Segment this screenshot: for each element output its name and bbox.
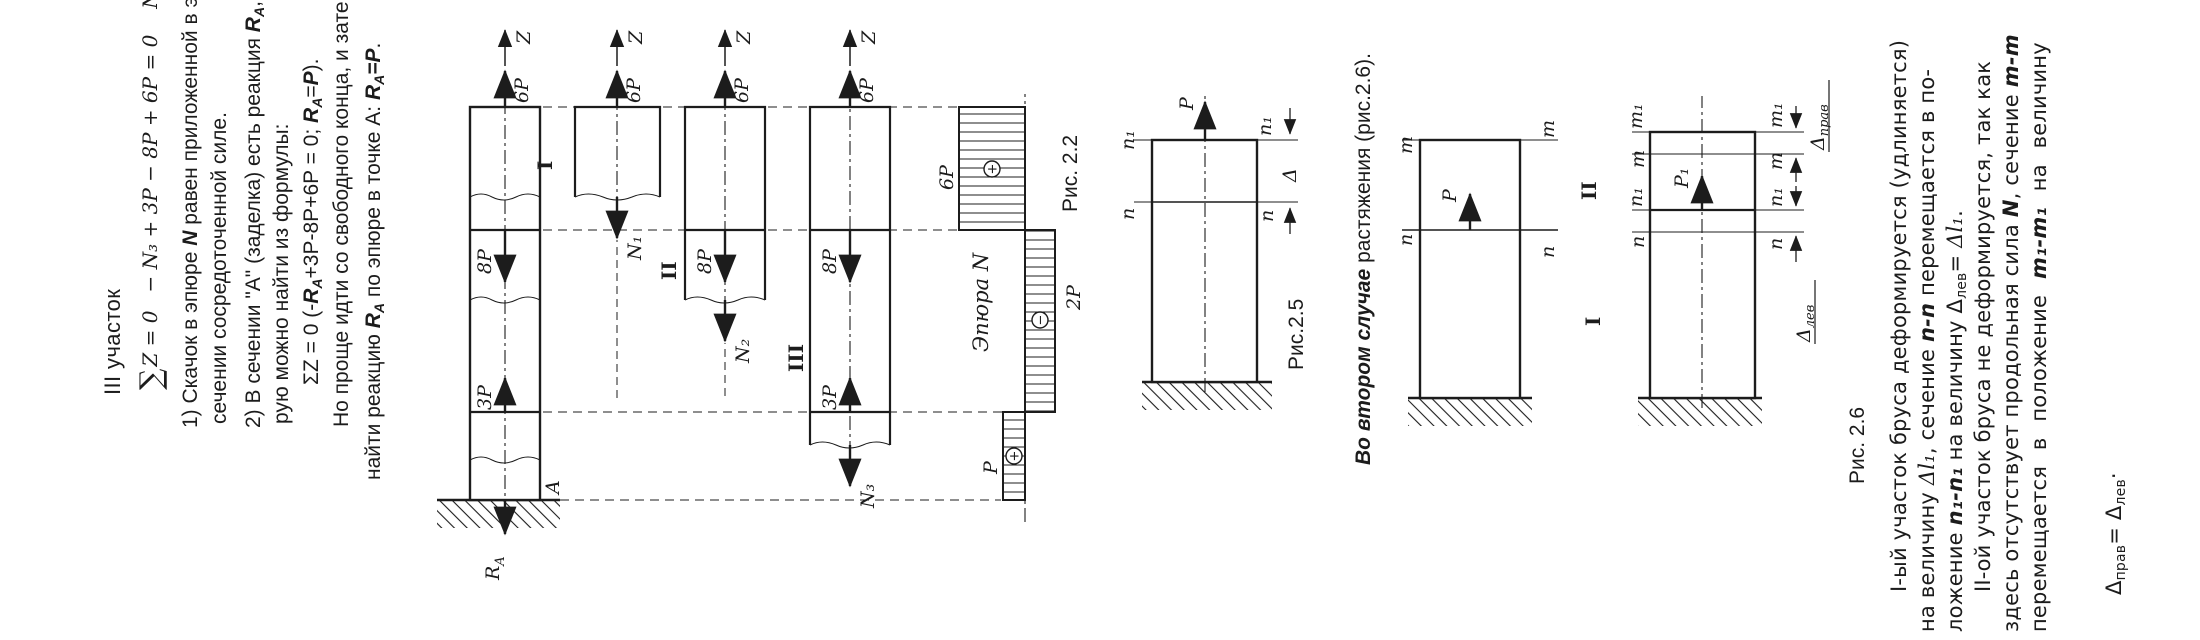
formula2-a: ΣZ = 0 (- [300,304,323,385]
expl-l3-dot: . [1943,210,1967,217]
wall-hatching [437,500,560,528]
expl-line1: I-ый участок бруса деформируется (удлиня… [1888,40,1910,592]
formula-reaction: ΣZ = 0 (-RA+3P-8P+6P = 0; RA=P). [301,59,325,385]
m-label-bottom: m [1537,120,1559,138]
expl-l3-text: ложение [1943,525,1967,632]
epure-6p-label: 6P [936,164,958,190]
expl-eq: = [2102,520,2126,545]
expl-l6-text2: на величину [2027,42,2051,207]
wall-hatching [1408,398,1532,426]
item2-R: R [242,17,265,32]
figure-2-5-caption: Рис.2.5 [1285,299,1308,370]
m1-label-top: m₁ [1625,103,1647,129]
figure-2-6: P m n m n I II P₁ n n₁ m m₁ n [1392,0,1882,640]
expl-delta: Δ [1943,299,1967,314]
expl-line5: здесь отсутствует продольная сила N, сеч… [2000,34,2022,632]
para3-R2: R [362,85,385,100]
expl-nn: n-n [1915,303,1939,342]
normal-force-diagram: + − + P 2P 6P Эпюра N Рис. 2.2 [936,94,1085,522]
para3-dot: . [362,43,385,49]
z-axis-label: Z [858,30,880,45]
main-bar-diagram: RA A 3P 8P 6P Z I [437,30,564,581]
force-3p-label: 3P [474,384,496,410]
expl-dl1: Δl₁ [1915,454,1939,485]
m-label-bottom: m [1765,152,1787,170]
expl-line4: II-ой участок бруса не деформируется, та… [1972,61,1994,592]
epure-title: Эпюра N [969,252,993,352]
second-case-rest: растяжения (рис.2.6). [1352,53,1375,269]
n1-label: N₁ [624,236,646,261]
second-case-lead: Во втором случае [1352,269,1375,465]
n3-label: N₃ [857,484,879,509]
formula2-R: R [300,289,323,304]
ra-label: RA [482,556,508,581]
expl-delta-sub: лев [1954,272,1970,298]
para3-line1: Но проще идти со свободного конца, и зат… [331,0,353,427]
m-label-top: m [1627,150,1649,168]
item1-N: N [179,231,202,246]
point-a-label: A [542,480,564,496]
expl-line7: Δправ= Δлев· [2103,472,2129,595]
figure-2-5: P n n₁ n n₁ Δ Рис.2.5 [1120,0,1320,640]
expl-line2: на величину Δl₁, сечение n-n перемещаетс… [1916,69,1938,632]
expl-dprav: Δ [2102,580,2126,595]
item2-R-sub: A [251,7,267,17]
para3-R: R [362,313,385,328]
plus-sign: + [986,164,1001,175]
item1-line2: сечении сосредоточенной силе. [209,112,231,424]
item1-line1: 1) Скачок в эпюре N равен приложенной в … [180,0,202,428]
para3-R-sub: A [371,303,387,313]
force-8p-label: 8P [474,248,496,274]
para3-R2-sub: A [371,75,387,85]
figure-2-2: RA A 3P 8P 6P Z I N₁ 6P Z II [425,0,1095,640]
force-3p-label: 3P [819,384,841,410]
expl-l2-text2: , сечение [1915,342,1939,454]
expl-l3-eq: = [1943,248,1967,273]
tension-bar-diagram: P n n₁ n n₁ Δ Рис.2.5 [1120,96,1308,410]
bar-outline [1420,140,1520,398]
expl-l5-text: здесь отсутствует продольная сила [1999,217,2023,632]
expl-l2-text3: перемещается в по- [1915,69,1939,303]
expl-dl1: Δl₁ [1943,217,1967,248]
para3-line2: найти реакцию RA по эпюре в точке А: RA=… [363,43,387,480]
force-p1-label: P₁ [1671,168,1693,189]
n-label-top: n [1120,208,1139,220]
expl-m1m1: m₁-m₁ [2027,207,2051,279]
formula2-c: +3P-8P+6P = 0; [300,123,323,278]
minus-sign: − [1034,315,1049,326]
n1-label-bottom: n₁ [1254,116,1276,136]
expl-l6-text: перемещается в положение [2027,279,2051,632]
para3-l2-text: найти реакцию [362,328,385,480]
section-1-numeral: I [1581,317,1605,326]
formula2-R-sub: A [309,278,325,288]
n-label-bottom: n [1765,238,1787,250]
item2-line1-text2: , кото- [242,0,265,7]
formula2-eq: = [300,85,323,97]
para3-eq: = [362,62,385,74]
force-p-label: P [1176,96,1198,111]
expl-mm: m-m [1999,34,2023,87]
expl-line6: перемещается в положение m₁-m₁ на величи… [2028,42,2050,632]
m-label-top: m [1395,136,1417,154]
n1-label-bottom: n₁ [1765,187,1787,207]
formula2-RA: RA [300,278,323,303]
expl-line3: ложение n₁-n₁ на величину Δлев= Δl₁. [1944,210,1970,632]
expl-N: N [1999,199,2023,217]
formula2-close: ). [300,59,323,72]
delta-label: Δ [1279,168,1301,183]
n1-label-top: n₁ [1625,187,1647,207]
plus-sign: + [1008,451,1023,462]
section-heading: III участок [101,289,124,395]
scanned-textbook-page: III участок ∑Z = 0− N₃ + 3P − 8P + 6P = … [0,0,2200,640]
expl-dlev-sub: лев [2113,479,2129,505]
para3-l2-text2: по эпюре в точке А: [362,100,385,303]
delta-lev-label: Δлев [1793,305,1818,343]
n1-label-top: n₁ [1120,130,1139,150]
n-label-bottom: n [1537,246,1559,258]
bar-deformed: P₁ n n₁ m m₁ n n₁ m m₁ Δлев Δправ Рис. 2… [1625,80,1869,484]
expl-l5-text2: , сечение [1999,87,2023,199]
section-2-numeral: II [1577,181,1601,200]
section-1-numeral: I [533,161,557,170]
z-axis-label: Z [733,30,755,45]
delta-prav-label: Δправ [1807,104,1832,151]
formula-equilibrium: ∑Z = 0− N₃ + 3P − 8P + 6P = 0N₃ = P [136,0,168,390]
force-8p-label: 8P [694,248,716,274]
force-6p-label: 6P [511,77,533,103]
force-6p-label: 6P [731,77,753,103]
z-axis-label: Z [625,30,647,45]
section-3-numeral: III [784,344,808,372]
formula-part-1: Z = 0 [138,310,162,366]
n-label-top: n [1627,236,1649,248]
item2-line2: рую можно найти из формулы: [271,124,293,424]
formula-part-2: − N₃ + 3P − 8P + 6P = 0 [138,35,162,311]
expl-dlev: Δ [2102,506,2126,521]
m1-label-bottom: m₁ [1765,102,1787,128]
force-6p-label: 6P [623,77,645,103]
para3-RA: RA [362,303,385,328]
expl-dprav-sub: прав [2113,545,2129,581]
z-axis-label: Z [513,30,535,45]
sigma-symbol: ∑ [134,367,169,390]
wall-hatching [1638,398,1762,426]
para3-RA2: RA [362,75,385,100]
formula2-P: P [300,71,323,85]
free-body-section-2: 8P N₂ 6P Z [685,30,765,396]
formula2-RA2: RA [300,98,323,123]
item2-RA: RA [242,7,265,32]
n2-label: N₂ [732,339,754,364]
item1-line1-text: 1) Скачок в эпюре [179,246,202,428]
free-body-section-3: 3P 8P N₃ 6P Z [810,30,890,509]
force-p-label: P [1439,188,1461,203]
epure-2p-label: 2P [1063,284,1085,311]
figure-2-6-caption: Рис. 2.6 [1846,407,1869,484]
formula2-R2-sub: A [309,98,325,108]
expl-l3-text2: на величину [1943,313,1967,467]
item2-line1-text: 2) В сечении "А" (заделка) есть реакция [242,32,265,428]
force-8p-label: 8P [819,248,841,274]
second-case-line: Во втором случае растяжения (рис.2.6). [1353,53,1375,465]
wall-hatching [1142,382,1272,410]
section-2-numeral: II [657,261,681,280]
figure-2-2-caption: Рис. 2.2 [1059,135,1082,212]
expl-l2-text: на величину [1915,485,1939,632]
bar-undeformed: P m n m n [1395,120,1559,426]
n-label-bottom: n [1256,210,1278,222]
n-label-top: n [1395,234,1417,246]
item1-line1-text2: равен приложенной в этом [179,0,202,231]
epure-p-label: P [980,460,1002,475]
item2-line1: 2) В сечении "А" (заделка) есть реакция … [243,0,267,428]
formula-part-3: N₃ = P [138,0,162,35]
expl-n1n1: n₁-n₁ [1943,467,1967,525]
force-6p-label: 6P [856,77,878,103]
free-body-section-1: N₁ 6P Z [575,30,660,398]
rotated-page-content: III участок ∑Z = 0− N₃ + 3P − 8P + 6P = … [0,0,2200,640]
para3-P: P [362,48,385,62]
expl-dot: · [2102,472,2126,479]
formula2-R2: R [300,108,323,123]
